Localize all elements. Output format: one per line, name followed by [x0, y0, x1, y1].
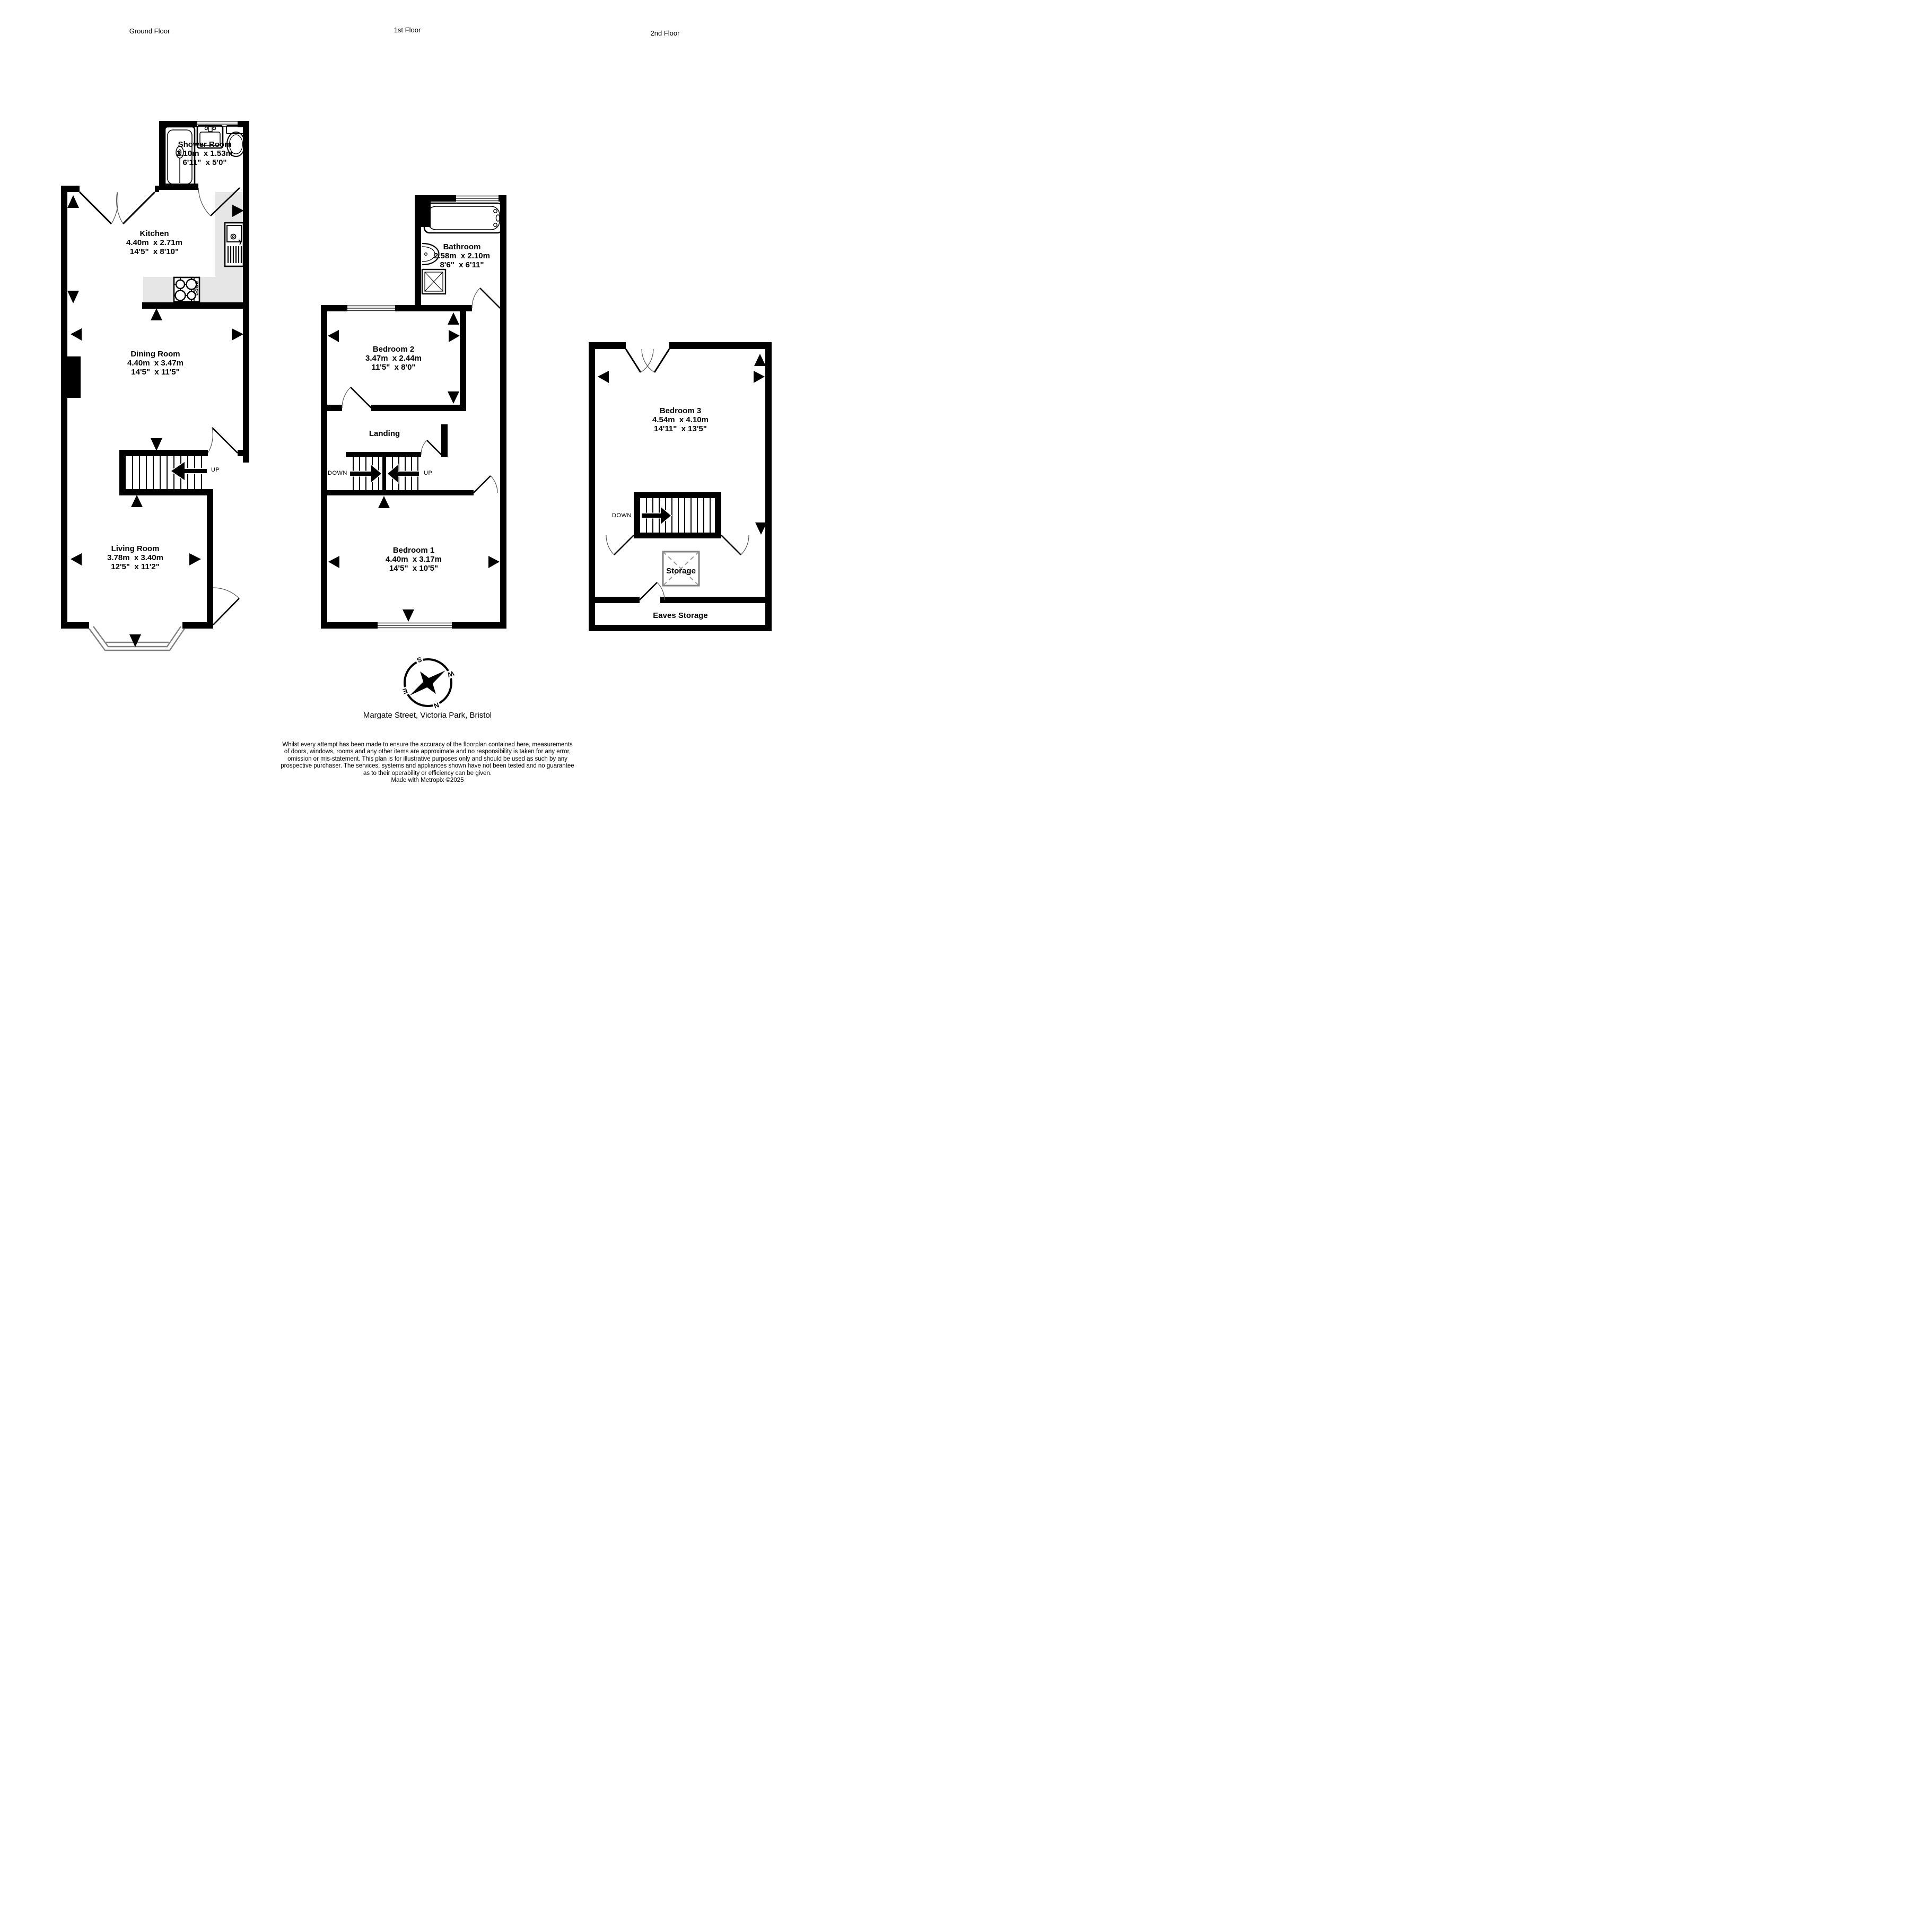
front-door: [213, 588, 239, 625]
room-dim-metric: 3.78m x 3.40m: [82, 553, 188, 562]
second-floor-title: 2nd Floor: [639, 29, 692, 37]
bedroom2-door: [342, 387, 371, 408]
ground-staircase: [133, 456, 207, 489]
bedroom3-french-doors: [626, 349, 669, 372]
floorplan-page: Ground Floor 1st Floor 2nd Floor: [0, 0, 832, 825]
kitchen-label: Kitchen 4.40m x 2.71m 14'5" x 8'10": [101, 229, 207, 256]
room-dim-metric: 2.58m x 2.10m: [409, 251, 515, 260]
room-dim-metric: 4.54m x 4.10m: [627, 415, 733, 424]
storage-label: Storage: [654, 567, 707, 576]
room-dim-imperial: 14'5" x 10'5": [361, 564, 467, 573]
room-dim-metric: 4.40m x 3.47m: [102, 359, 208, 368]
room-dim-metric: 4.40m x 2.71m: [101, 238, 207, 247]
first-down-label: DOWN: [328, 470, 346, 476]
stair-right-door: [721, 535, 749, 555]
stair-left-door: [606, 535, 634, 555]
dining-hall-door: [208, 428, 238, 453]
room-name: Bedroom 3: [627, 406, 733, 415]
shower-tray-icon: [422, 269, 445, 294]
room-dim-imperial: 6'11" x 5'0": [162, 158, 247, 167]
bedroom3-label: Bedroom 3 4.54m x 4.10m 14'11" x 13'5": [627, 406, 733, 433]
room-name: Bedroom 1: [361, 546, 467, 555]
kitchen-french-doors: [80, 192, 155, 224]
disclaimer-block: Whilst every attempt has been made to en…: [193, 742, 662, 784]
bathroom-door: [472, 288, 500, 308]
room-name: Bathroom: [409, 242, 515, 251]
bedroom1-door: [474, 476, 497, 493]
bedroom2-label: Bedroom 2 3.47m x 2.44m 11'5" x 8'0": [340, 345, 447, 372]
metropix-credit: Made with Metropix ©2025: [193, 777, 662, 784]
disclaimer-line: Whilst every attempt has been made to en…: [193, 742, 662, 748]
bathroom-window: [456, 195, 499, 202]
second-staircase: [642, 498, 710, 533]
eaves-storage-label: Eaves Storage: [627, 611, 733, 620]
second-walls: [589, 342, 772, 631]
room-name: Shower Room: [162, 140, 247, 149]
room-dim-imperial: 12'5" x 11'2": [82, 562, 188, 571]
property-address: Margate Street, Victoria Park, Bristol: [215, 711, 640, 720]
disclaimer-line: prospective purchaser. The services, sys…: [193, 763, 662, 770]
disclaimer-line: of doors, windows, rooms and any other i…: [193, 748, 662, 755]
disclaimer-line: omission or mis-statement. This plan is …: [193, 756, 662, 763]
compass-icon: [398, 652, 459, 713]
shower-room-label: Shower Room 2.10m x 1.53m 6'11" x 5'0": [162, 140, 247, 167]
room-name: Dining Room: [102, 350, 208, 359]
room-dim-imperial: 14'11" x 13'5": [627, 424, 733, 433]
room-dim-imperial: 14'5" x 8'10": [101, 247, 207, 256]
kitchen-sink-icon: [225, 223, 243, 266]
room-name: Kitchen: [101, 229, 207, 238]
room-dim-metric: 2.10m x 1.53m: [162, 149, 247, 158]
bedroom2-window: [347, 305, 395, 311]
first-up-label: UP: [424, 470, 432, 476]
second-down-label: DOWN: [612, 512, 632, 519]
room-dim-imperial: 14'5" x 11'5": [102, 368, 208, 377]
living-room-label: Living Room 3.78m x 3.40m 12'5" x 11'2": [82, 544, 188, 571]
first-floor-title: 1st Floor: [381, 26, 434, 34]
room-dim-imperial: 8'6" x 6'11": [409, 260, 515, 269]
bathroom-label: Bathroom 2.58m x 2.10m 8'6" x 6'11": [409, 242, 515, 269]
room-name: Bedroom 2: [340, 345, 447, 354]
second-marker-triangles: [598, 354, 767, 535]
second-floor-plan-graphic: [583, 337, 780, 637]
room-dim-metric: 4.40m x 3.17m: [361, 555, 467, 564]
ground-up-label: UP: [211, 467, 220, 473]
ground-floor-title: Ground Floor: [123, 27, 176, 35]
room-dim-imperial: 11'5" x 8'0": [340, 363, 447, 372]
hob-icon: [174, 277, 199, 302]
dining-room-label: Dining Room 4.40m x 3.47m 14'5" x 11'5": [102, 350, 208, 377]
landing-label: Landing: [358, 429, 411, 438]
bedroom1-window: [378, 622, 452, 629]
bedroom1-label: Bedroom 1 4.40m x 3.17m 14'5" x 10'5": [361, 546, 467, 573]
bath-icon: [424, 203, 503, 233]
room-name: Living Room: [82, 544, 188, 553]
disclaimer-line: as to their operability or efficiency ca…: [193, 770, 662, 777]
ground-floor-plan-graphic: [53, 117, 255, 658]
landing-corridor-door: [421, 440, 441, 455]
room-dim-metric: 3.47m x 2.44m: [340, 354, 447, 363]
